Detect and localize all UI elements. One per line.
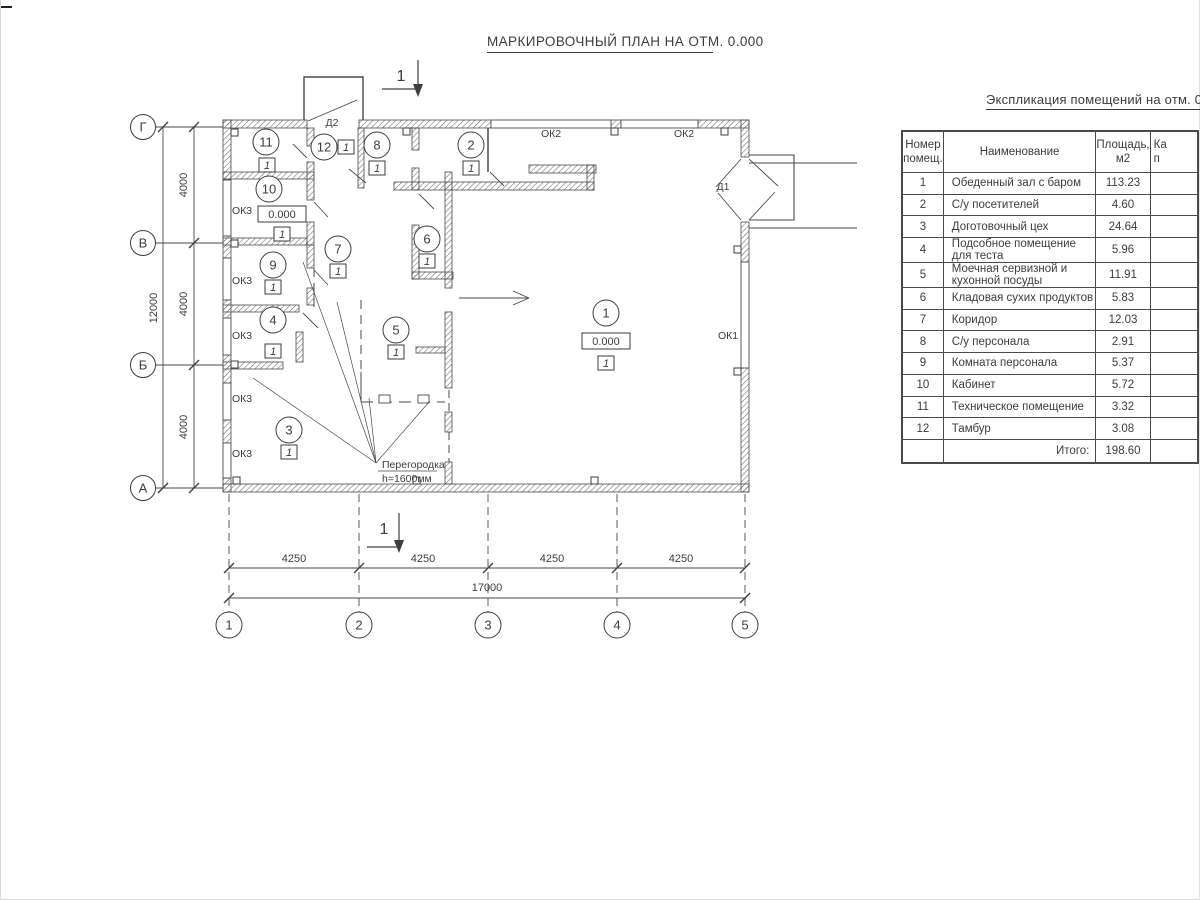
- window-tag-ok3: ОК3: [232, 393, 252, 405]
- room-area-cell: 12.03: [1096, 309, 1150, 331]
- room-name-cell: Коридор: [943, 309, 1096, 331]
- room-area-cell: 24.64: [1096, 216, 1150, 238]
- axis-col-label: 3: [484, 618, 491, 633]
- header-room-number: Номер помещ.: [902, 131, 943, 173]
- axis-row-label: Г: [139, 120, 146, 135]
- window-tag-ok3: ОК3: [232, 275, 252, 287]
- header-room-category: Ка п: [1150, 131, 1198, 173]
- section-label: 1: [397, 68, 406, 85]
- axis-col-label: 5: [741, 618, 748, 633]
- room-category-cell: [1150, 418, 1198, 440]
- dim-bottom-segment: 4250: [669, 553, 693, 565]
- category-mark: 1: [424, 256, 430, 268]
- dim-bottom-total: 17000: [472, 582, 503, 594]
- room-number-cell: 4: [902, 238, 943, 263]
- header-room-name: Наименование: [943, 131, 1096, 173]
- axis-row-label: Б: [139, 358, 148, 373]
- schedule-row: 10Кабинет5.72: [902, 374, 1198, 396]
- room-number-cell: 11: [902, 396, 943, 418]
- room-number-cell: 3: [902, 216, 943, 238]
- room-number: 12: [317, 140, 331, 155]
- room-number-cell: 6: [902, 288, 943, 310]
- dim-bottom-segment: 4250: [411, 553, 435, 565]
- schedule-row: 1Обеденный зал с баром113.23: [902, 173, 1198, 195]
- schedule-row: 8С/у персонала2.91: [902, 331, 1198, 353]
- window-tag-ok2: ОК2: [541, 128, 561, 140]
- room-category-cell: [1150, 396, 1198, 418]
- dim-left-total: 12000: [148, 293, 160, 324]
- room-number: 1: [602, 306, 609, 321]
- room-number-cell: 10: [902, 374, 943, 396]
- room-number-cell: 2: [902, 194, 943, 216]
- dim-left-segment: 4000: [178, 292, 190, 316]
- room-name-cell: Моечная сервизной и кухонной посуды: [943, 263, 1096, 288]
- category-mark: 1: [286, 447, 292, 459]
- section-label: 1: [380, 521, 389, 538]
- category-mark: 1: [279, 229, 285, 241]
- room-name-cell: С/у посетителей: [943, 194, 1096, 216]
- axis-row-label: В: [139, 236, 148, 251]
- room-category-cell: [1150, 173, 1198, 195]
- room-category-cell: [1150, 216, 1198, 238]
- room-area-cell: 5.83: [1096, 288, 1150, 310]
- room-number-cell: 7: [902, 309, 943, 331]
- schedule-title: Экспликация помещений на отм. 0.000: [986, 92, 1200, 110]
- dim-left-segment: 4000: [178, 173, 190, 197]
- total-label: Итого:: [943, 439, 1096, 462]
- category-mark: 1: [335, 266, 341, 278]
- room-area-cell: 3.08: [1096, 418, 1150, 440]
- room-area-cell: 4.60: [1096, 194, 1150, 216]
- room-area-cell: 11.91: [1096, 263, 1150, 288]
- room-number-cell: 1: [902, 173, 943, 195]
- room-number-cell: 5: [902, 263, 943, 288]
- category-mark: 1: [270, 346, 276, 358]
- room-category-cell: [1150, 288, 1198, 310]
- room-area-cell: 2.91: [1096, 331, 1150, 353]
- axis-col-label: 4: [613, 618, 620, 633]
- schedule-row: 3Доготовочный цех24.64: [902, 216, 1198, 238]
- room-category-cell: [1150, 309, 1198, 331]
- schedule-row: 11Техническое помещение3.32: [902, 396, 1198, 418]
- room-number: 4: [269, 313, 276, 328]
- category-mark: 1: [468, 163, 474, 175]
- room-name-cell: Кладовая сухих продуктов: [943, 288, 1096, 310]
- room-number: 7: [334, 242, 341, 257]
- room-number: 8: [373, 138, 380, 153]
- total-empty-cell: [902, 439, 943, 462]
- elevation-mark: 0.000: [592, 336, 620, 348]
- axis-col-label: 1: [225, 618, 232, 633]
- room-name-cell: Кабинет: [943, 374, 1096, 396]
- partition-note-line1: Перегородка: [382, 459, 445, 471]
- room-number: 11: [259, 135, 273, 150]
- room-area-cell: 3.32: [1096, 396, 1150, 418]
- drawing-page: { "title": "МАРКИРОВОЧНЫЙ ПЛАН НА ОТМ. 0…: [0, 0, 1200, 900]
- vestibule-outline: [304, 77, 363, 120]
- category-mark: 1: [603, 358, 609, 370]
- schedule-row: 4Подсобное помещение для теста5.96: [902, 238, 1198, 263]
- schedule-row: 2С/у посетителей4.60: [902, 194, 1198, 216]
- schedule-row: 5Моечная сервизной и кухонной посуды11.9…: [902, 263, 1198, 288]
- room-schedule: Номер помещ. Наименование Площадь, м2 Ка…: [901, 130, 1199, 464]
- window-tag-ok3: ОК3: [232, 448, 252, 460]
- door-leaves: [293, 100, 778, 328]
- door-tag-d1: Д1: [717, 181, 730, 193]
- room-number: 10: [262, 182, 276, 197]
- dim-bottom-segment: 4250: [540, 553, 564, 565]
- partition-note-line2: h=1600мм: [382, 473, 432, 485]
- schedule-row: 12Тамбур3.08: [902, 418, 1198, 440]
- elevation-mark: 0.000: [268, 209, 296, 221]
- category-mark: 1: [374, 163, 380, 175]
- porch-outline: [749, 155, 857, 228]
- axis-row-label: А: [139, 481, 148, 496]
- window-tag-ok3: ОК3: [232, 205, 252, 217]
- room-number: 2: [467, 138, 474, 153]
- room-category-cell: [1150, 238, 1198, 263]
- header-room-area: Площадь, м2: [1096, 131, 1150, 173]
- room-category-cell: [1150, 353, 1198, 375]
- axis-col-label: 2: [355, 618, 362, 633]
- room-name-cell: Техническое помещение: [943, 396, 1096, 418]
- room-number: 3: [285, 423, 292, 438]
- room-category-cell: [1150, 331, 1198, 353]
- room-category-cell: [1150, 374, 1198, 396]
- room-area-cell: 5.96: [1096, 238, 1150, 263]
- room-area-cell: 113.23: [1096, 173, 1150, 195]
- room-name-cell: Доготовочный цех: [943, 216, 1096, 238]
- schedule-row: 7Коридор12.03: [902, 309, 1198, 331]
- room-name-cell: С/у персонала: [943, 331, 1096, 353]
- room-number-cell: 12: [902, 418, 943, 440]
- room-name-cell: Обеденный зал с баром: [943, 173, 1096, 195]
- room-category-cell: [1150, 263, 1198, 288]
- category-mark: 1: [270, 282, 276, 294]
- room-name-cell: Подсобное помещение для теста: [943, 238, 1096, 263]
- room-name-cell: Комната персонала: [943, 353, 1096, 375]
- window-tag-ok2: ОК2: [674, 128, 694, 140]
- room-area-cell: 5.72: [1096, 374, 1150, 396]
- schedule-table: Номер помещ. Наименование Площадь, м2 Ка…: [901, 130, 1199, 464]
- room-category-cell: [1150, 194, 1198, 216]
- window-tag-ok3: ОК3: [232, 330, 252, 342]
- total-area-value: 198.60: [1096, 439, 1150, 462]
- schedule-row: 9Комната персонала5.37: [902, 353, 1198, 375]
- room-name-cell: Тамбур: [943, 418, 1096, 440]
- category-mark: 1: [343, 142, 349, 154]
- schedule-row: 6Кладовая сухих продуктов5.83: [902, 288, 1198, 310]
- room-number: 6: [423, 232, 430, 247]
- dim-left-segment: 4000: [178, 415, 190, 439]
- room-area-cell: 5.37: [1096, 353, 1150, 375]
- partition-lines: [314, 268, 449, 462]
- schedule-total-row: Итого: 198.60: [902, 439, 1198, 462]
- room-number-cell: 8: [902, 331, 943, 353]
- window-tag-ok1: ОК1: [718, 330, 738, 342]
- door-tag-d2: Д2: [326, 117, 339, 129]
- schedule-header-row: Номер помещ. Наименование Площадь, м2 Ка…: [902, 131, 1198, 173]
- room-number-cell: 9: [902, 353, 943, 375]
- room-number: 9: [269, 258, 276, 273]
- dim-bottom-segment: 4250: [282, 553, 306, 565]
- room-number: 5: [392, 323, 399, 338]
- category-mark: 1: [393, 347, 399, 359]
- category-mark: 1: [264, 160, 270, 172]
- total-category-cell: [1150, 439, 1198, 462]
